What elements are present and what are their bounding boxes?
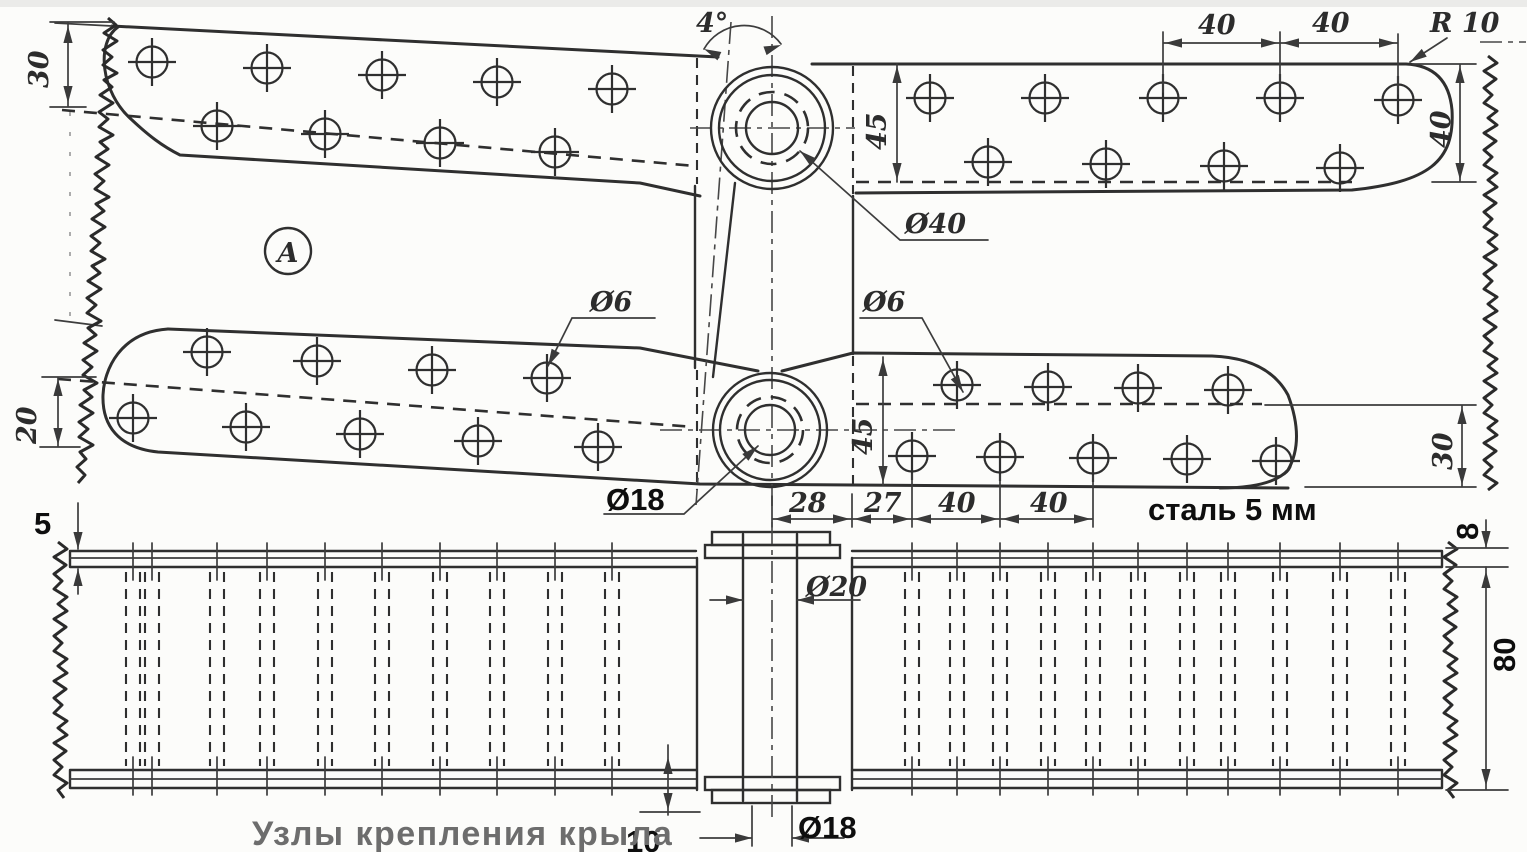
side-view: 5 Ø20 Ø18 10 8 80 bbox=[34, 503, 1522, 852]
plate-strip-inner-lines bbox=[70, 558, 1442, 779]
engineering-drawing: А 30 4° 40 40 R 10 45 bbox=[0, 0, 1527, 852]
dim-edge-offset-top-left: 30 bbox=[24, 50, 55, 88]
drawing-page: А 30 4° 40 40 R 10 45 bbox=[0, 0, 1527, 852]
dim-chain-28: 28 bbox=[788, 488, 827, 519]
upper-right-plate-outline bbox=[812, 64, 1452, 193]
detail-marker-label: А bbox=[275, 238, 299, 269]
dim-boss-diameter: Ø40 bbox=[904, 209, 966, 240]
hole-center-ticks bbox=[133, 543, 1398, 795]
dim-chain-40-b: 40 bbox=[1030, 488, 1068, 519]
break-line-right-side bbox=[1444, 542, 1457, 798]
upper-left-plate-top-edge bbox=[112, 26, 718, 57]
dim-edge-thickness: 8 bbox=[1450, 523, 1485, 540]
dim-chain-40-a: 40 bbox=[938, 488, 976, 519]
drawing-caption: Узлы крепления крыла bbox=[252, 815, 673, 852]
plate-strips bbox=[70, 551, 1442, 788]
hinge-barrel bbox=[697, 522, 852, 820]
dim-hinge-angle: 4° bbox=[696, 8, 728, 39]
dim-pin-diameter: Ø18 bbox=[606, 482, 665, 517]
dim-plate-thickness: 5 bbox=[34, 506, 51, 541]
dim-hole-diameter-left: Ø6 bbox=[589, 287, 633, 318]
dim-hole-pitch-b: 40 bbox=[1312, 8, 1350, 39]
dim-total-height: 80 bbox=[1487, 638, 1522, 672]
top-edge-band bbox=[0, 0, 1527, 7]
dim-edge-offset-bottom-left: 20 bbox=[12, 406, 43, 445]
lower-left-plate-top-edge bbox=[168, 329, 758, 371]
break-line-right-plan bbox=[1484, 56, 1497, 490]
dim-edge-width-right: 40 bbox=[1426, 110, 1457, 148]
rivet-holes bbox=[109, 38, 1422, 485]
lower-left-hidden-edge bbox=[58, 379, 694, 427]
dim-corner-radius: R 10 bbox=[1429, 8, 1500, 39]
break-line-left bbox=[77, 18, 117, 483]
dim-edge-offset-bottom-right: 30 bbox=[1428, 432, 1459, 470]
hidden-hole-lines bbox=[126, 572, 1405, 766]
plan-view: А 30 4° 40 40 R 10 45 bbox=[12, 8, 1526, 527]
break-line-left-side bbox=[54, 542, 67, 798]
dim-hole-diameter-right: Ø6 bbox=[862, 287, 906, 318]
material-note: сталь 5 мм bbox=[1148, 492, 1317, 527]
neck-fold-edge bbox=[713, 183, 735, 377]
side-dimensions: 5 Ø20 Ø18 10 8 80 bbox=[34, 503, 1522, 852]
dim-bush-diameter: Ø20 bbox=[805, 572, 867, 603]
dim-plate-width-upper: 45 bbox=[862, 112, 893, 150]
dim-chain-27: 27 bbox=[863, 488, 902, 519]
dim-pin-diameter-side: Ø18 bbox=[798, 810, 857, 845]
dim-plate-width-lower: 45 bbox=[848, 417, 879, 455]
dim-hole-pitch-a: 40 bbox=[1198, 10, 1236, 41]
upper-left-hidden-edge bbox=[62, 110, 695, 166]
